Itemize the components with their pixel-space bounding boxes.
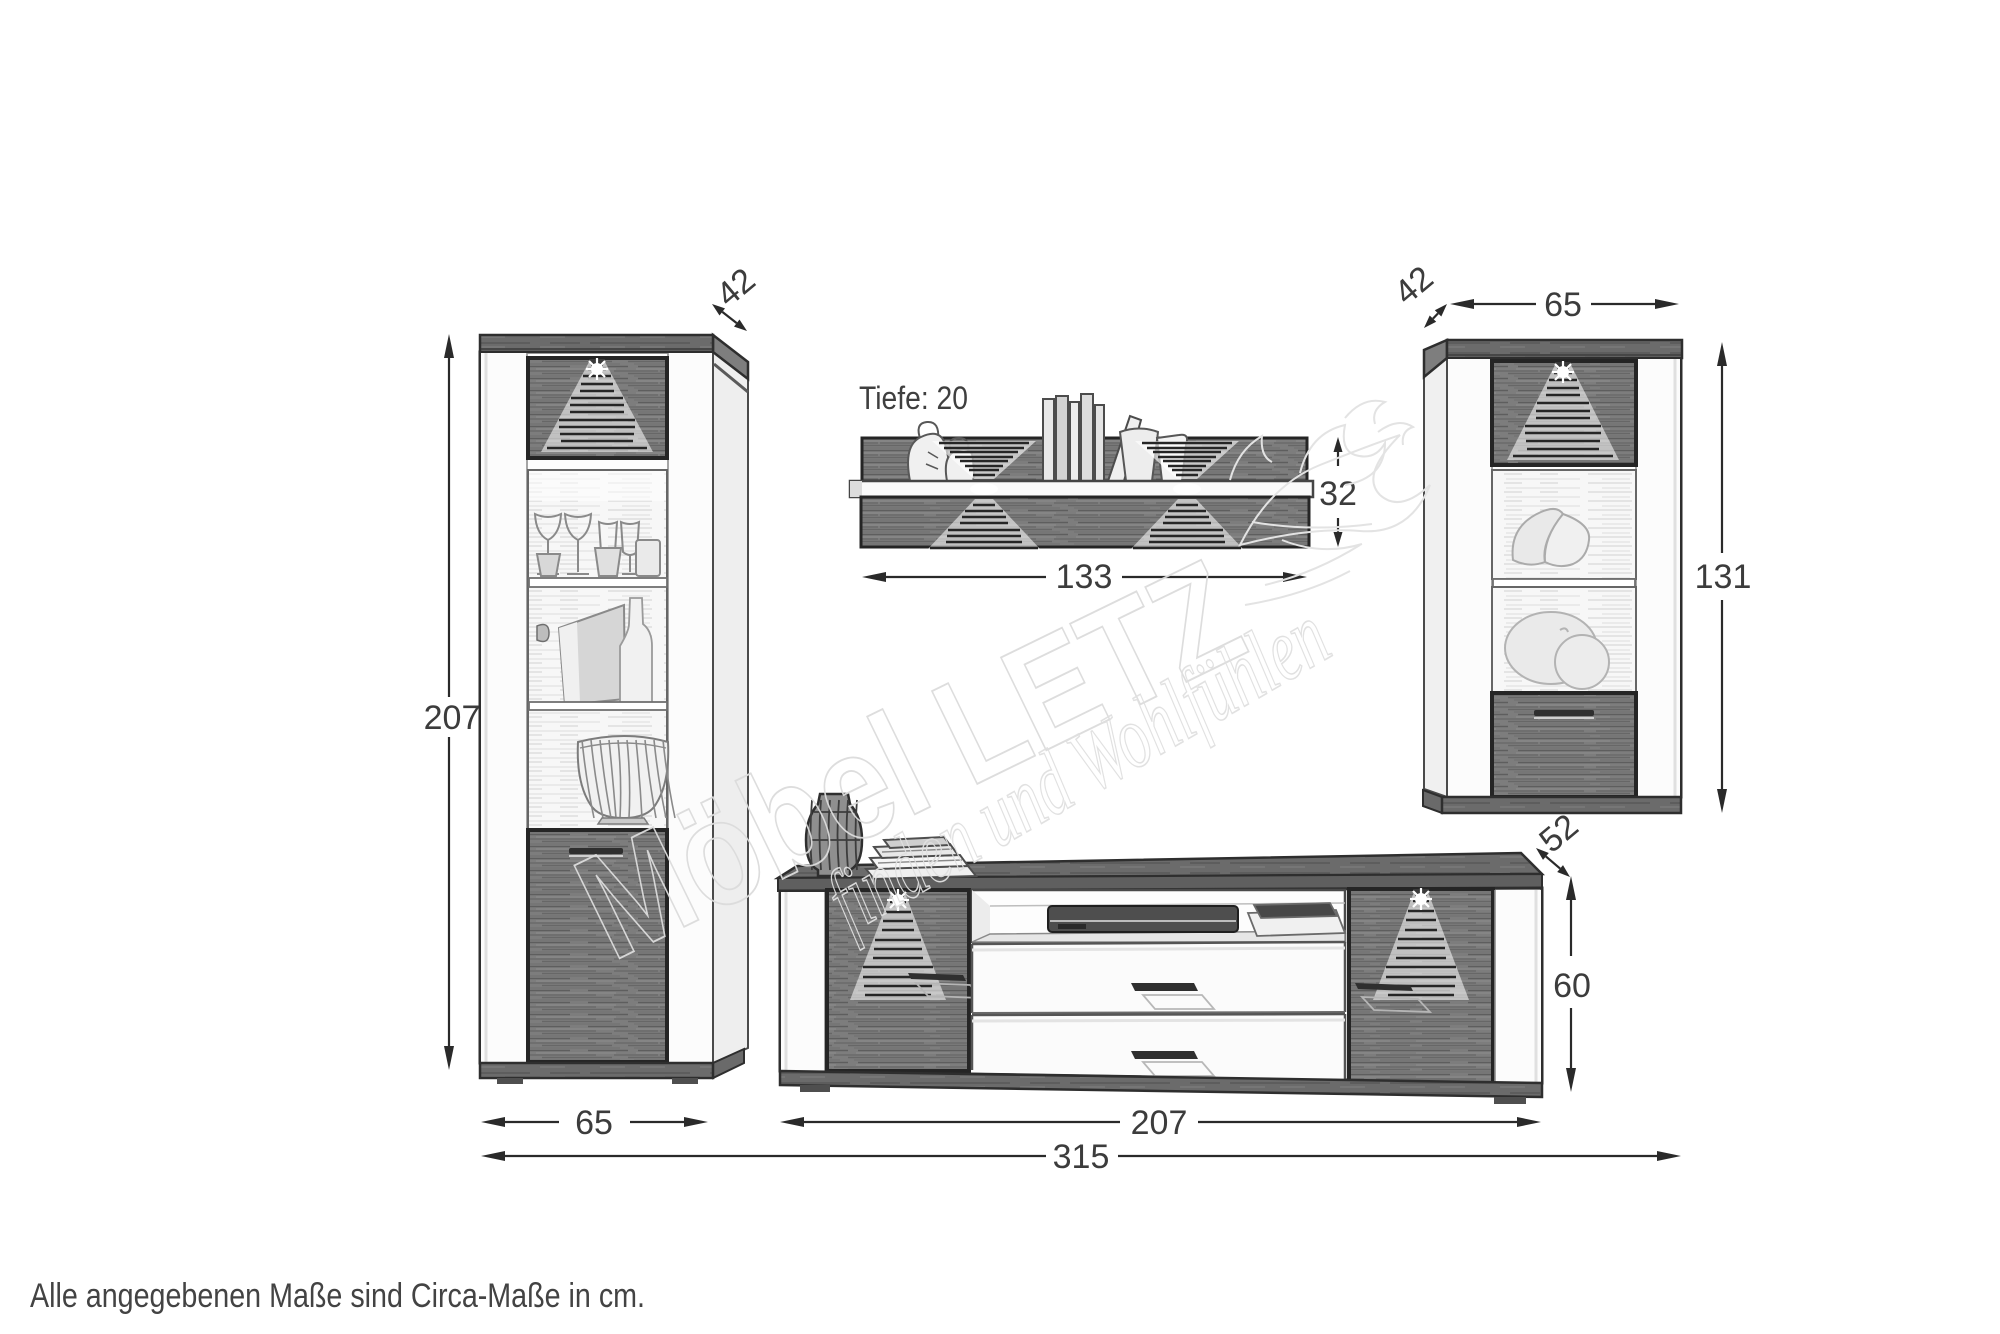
svg-text:315: 315 bbox=[1053, 1138, 1110, 1176]
svg-text:65: 65 bbox=[575, 1104, 613, 1142]
svg-text:60: 60 bbox=[1553, 967, 1591, 1005]
svg-text:207: 207 bbox=[424, 699, 481, 737]
svg-text:65: 65 bbox=[1544, 286, 1582, 324]
svg-text:Alle angegebenen Maße sind Cir: Alle angegebenen Maße sind Circa-Maße in… bbox=[30, 1277, 645, 1315]
svg-text:Tiefe: 20: Tiefe: 20 bbox=[859, 380, 968, 416]
svg-text:32: 32 bbox=[1319, 475, 1357, 513]
svg-text:131: 131 bbox=[1695, 558, 1752, 596]
svg-text:207: 207 bbox=[1131, 1104, 1188, 1142]
